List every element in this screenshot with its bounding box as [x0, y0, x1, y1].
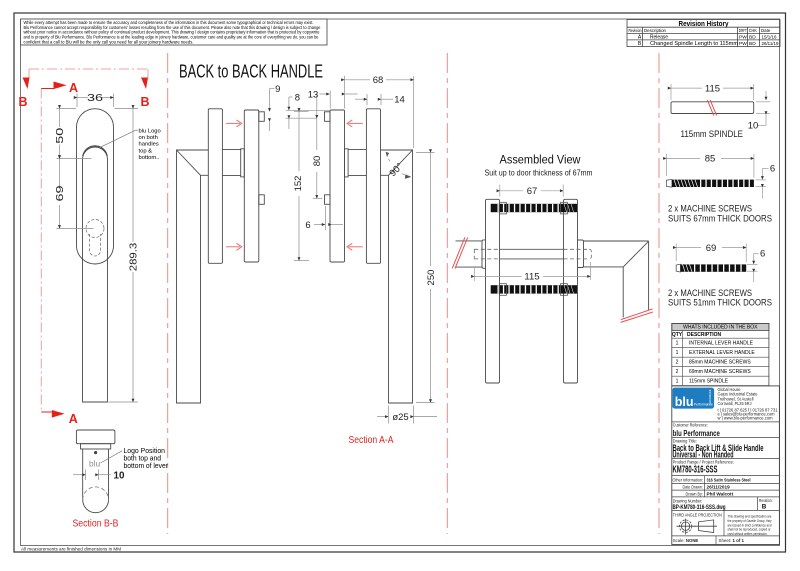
svg-text:1: 1 — [676, 379, 679, 385]
svg-text:bottom..: bottom.. — [139, 155, 160, 161]
svg-text:B: B — [140, 95, 149, 109]
svg-text:15/1/16: 15/1/16 — [762, 34, 777, 40]
svg-text:QTY: QTY — [672, 332, 683, 338]
svg-text:1: 1 — [676, 350, 679, 356]
svg-text:CHK: CHK — [749, 28, 757, 33]
svg-text:115mm SPINDLE: 115mm SPINDLE — [689, 379, 729, 385]
svg-text:used without written permissio: used without written permission. — [728, 531, 768, 536]
svg-text:blu: blu — [89, 459, 101, 469]
svg-text:All measurements are finished: All measurements are finished dimensions… — [21, 547, 121, 552]
svg-text:Drawing Number:: Drawing Number: — [673, 498, 703, 503]
svg-text:6: 6 — [305, 220, 310, 231]
svg-text:Date: Date — [761, 28, 771, 33]
svg-text:A: A — [69, 412, 78, 426]
svg-text:Date Drawn:: Date Drawn: — [683, 485, 704, 490]
svg-text:INTERNAL LEVER HANDLE: INTERNAL LEVER HANDLE — [689, 341, 754, 347]
svg-text:80: 80 — [312, 156, 323, 167]
svg-text:36: 36 — [87, 93, 103, 104]
svg-text:250: 250 — [426, 270, 437, 286]
svg-text:DRFT: DRFT — [739, 28, 747, 33]
svg-text:115: 115 — [705, 83, 720, 94]
svg-text:B: B — [762, 504, 767, 511]
svg-text:ø25: ø25 — [392, 412, 408, 423]
svg-text:152: 152 — [293, 176, 304, 192]
svg-text:HARDWARE: HARDWARE — [708, 389, 712, 404]
svg-text:2: 2 — [676, 360, 679, 366]
svg-text:85mm MACHINE SCREWS: 85mm MACHINE SCREWS — [689, 360, 751, 366]
svg-text:B: B — [18, 95, 27, 109]
svg-text:10: 10 — [114, 471, 125, 482]
svg-text:26/11/2019: 26/11/2019 — [707, 485, 731, 490]
svg-text:67: 67 — [527, 186, 538, 197]
svg-text:blu Performance: blu Performance — [673, 429, 720, 438]
svg-text:THIRD ANGLE PROJECTION: THIRD ANGLE PROJECTION — [673, 513, 722, 518]
svg-text:SUITS 67mm THICK DOORS: SUITS 67mm THICK DOORS — [668, 213, 772, 224]
svg-text:316 Satin Stainless Steel: 316 Satin Stainless Steel — [707, 478, 751, 483]
svg-text:confident that a call to Blu w: confident that a call to Blu will be the… — [24, 40, 194, 45]
svg-text:Release: Release — [650, 34, 668, 40]
svg-text:Changed Spindle Length to 115m: Changed Spindle Length to 115mm — [650, 41, 738, 47]
svg-text:handles: handles — [139, 142, 159, 148]
svg-text:Suit up to door thickness of 6: Suit up to door thickness of 67mm — [485, 168, 593, 177]
svg-text:Drawn By:: Drawn By: — [686, 491, 704, 496]
svg-text:115: 115 — [524, 272, 539, 283]
svg-text:Other Information:: Other Information: — [673, 478, 704, 483]
svg-text:Sheet: 1 of 1: Sheet: 1 of 1 — [719, 538, 745, 544]
svg-text:BD: BD — [749, 34, 756, 40]
svg-text:8: 8 — [295, 93, 300, 104]
svg-text:69: 69 — [706, 243, 717, 254]
svg-text:Revision: Revision — [629, 28, 642, 33]
svg-text:9: 9 — [275, 84, 280, 95]
svg-text:A: A — [69, 81, 78, 95]
svg-text:Description: Description — [644, 28, 667, 33]
svg-text:BD: BD — [749, 41, 756, 47]
svg-text:Cornwall, PL25 5RJ: Cornwall, PL25 5RJ — [718, 401, 752, 406]
svg-text:EXTERNAL LEVER HANDLE: EXTERNAL LEVER HANDLE — [689, 350, 755, 356]
svg-text:Section B-B: Section B-B — [73, 517, 119, 529]
svg-text:w | www.blu-performance.com: w | www.blu-performance.com — [718, 416, 773, 421]
svg-text:on both: on both — [139, 135, 158, 141]
svg-text:top &: top & — [139, 148, 153, 154]
svg-text:BP-KM780-316-SSS.dwg: BP-KM780-316-SSS.dwg — [673, 504, 726, 511]
svg-text:10: 10 — [748, 121, 759, 132]
svg-text:1: 1 — [676, 341, 679, 347]
svg-text:Performance 1: Performance 1 — [694, 402, 716, 406]
svg-text:13: 13 — [308, 89, 319, 100]
svg-text:85: 85 — [705, 154, 716, 165]
svg-text:14: 14 — [394, 95, 405, 106]
svg-text:68: 68 — [373, 75, 384, 86]
svg-text:2: 2 — [676, 369, 679, 375]
svg-text:6: 6 — [770, 164, 775, 175]
svg-text:Revision:: Revision: — [759, 498, 773, 503]
svg-text:26/11/19: 26/11/19 — [762, 41, 779, 47]
svg-text:blu: blu — [675, 395, 694, 409]
svg-text:PW: PW — [739, 34, 747, 40]
svg-text:69mm MACHINE SCREWS: 69mm MACHINE SCREWS — [689, 369, 751, 375]
svg-text:115mm SPINDLE: 115mm SPINDLE — [681, 129, 744, 140]
svg-text:bottom of lever: bottom of lever — [124, 461, 169, 470]
svg-text:50: 50 — [55, 127, 66, 143]
svg-text:Universal - Non Handed: Universal - Non Handed — [673, 450, 734, 460]
svg-text:Assembled View: Assembled View — [500, 152, 581, 166]
svg-text:Section A-A: Section A-A — [349, 434, 394, 446]
svg-text:SUITS 51mm THICK DOORS: SUITS 51mm THICK DOORS — [668, 298, 772, 309]
svg-text:6: 6 — [760, 249, 765, 260]
svg-text:Revision History: Revision History — [679, 19, 730, 28]
svg-text:289.3: 289.3 — [128, 242, 139, 271]
svg-text:69: 69 — [55, 185, 66, 201]
svg-text:blu Logo: blu Logo — [139, 128, 161, 134]
svg-text:BACK to BACK HANDLE: BACK to BACK HANDLE — [179, 60, 323, 81]
svg-text:DESCRIPTION: DESCRIPTION — [687, 332, 722, 338]
svg-text:Scale: NONE: Scale: NONE — [673, 538, 699, 544]
svg-text:PW: PW — [739, 41, 747, 47]
svg-text:KM780-316-SSS: KM780-316-SSS — [673, 464, 718, 475]
svg-text:WHATS INCLUDED IN THE BOX: WHATS INCLUDED IN THE BOX — [683, 325, 758, 331]
svg-text:Customer Reference:: Customer Reference: — [673, 423, 708, 428]
svg-text:Phil Walcott: Phil Walcott — [707, 491, 734, 496]
